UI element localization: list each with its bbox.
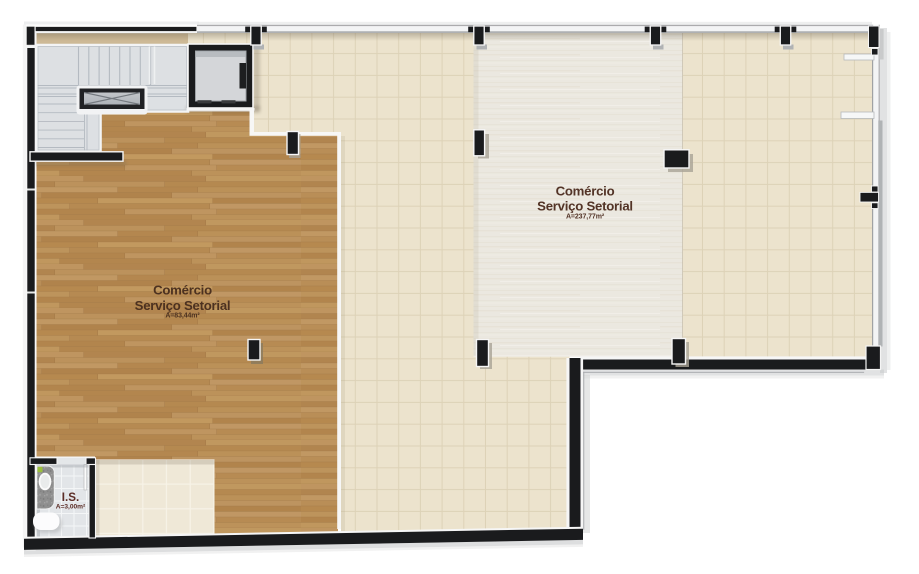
svg-text:A=83,44m²: A=83,44m²	[165, 313, 200, 320]
svg-text:A=237,77m²: A=237,77m²	[566, 214, 605, 221]
svg-text:I.S.: I.S.	[62, 491, 79, 504]
svg-text:A=3,00m²: A=3,00m²	[56, 504, 86, 511]
svg-text:Serviço Setorial: Serviço Setorial	[537, 199, 633, 214]
svg-text:Comércio: Comércio	[153, 283, 212, 298]
svg-text:Comércio: Comércio	[556, 184, 615, 199]
svg-text:Serviço Setorial: Serviço Setorial	[135, 298, 231, 313]
